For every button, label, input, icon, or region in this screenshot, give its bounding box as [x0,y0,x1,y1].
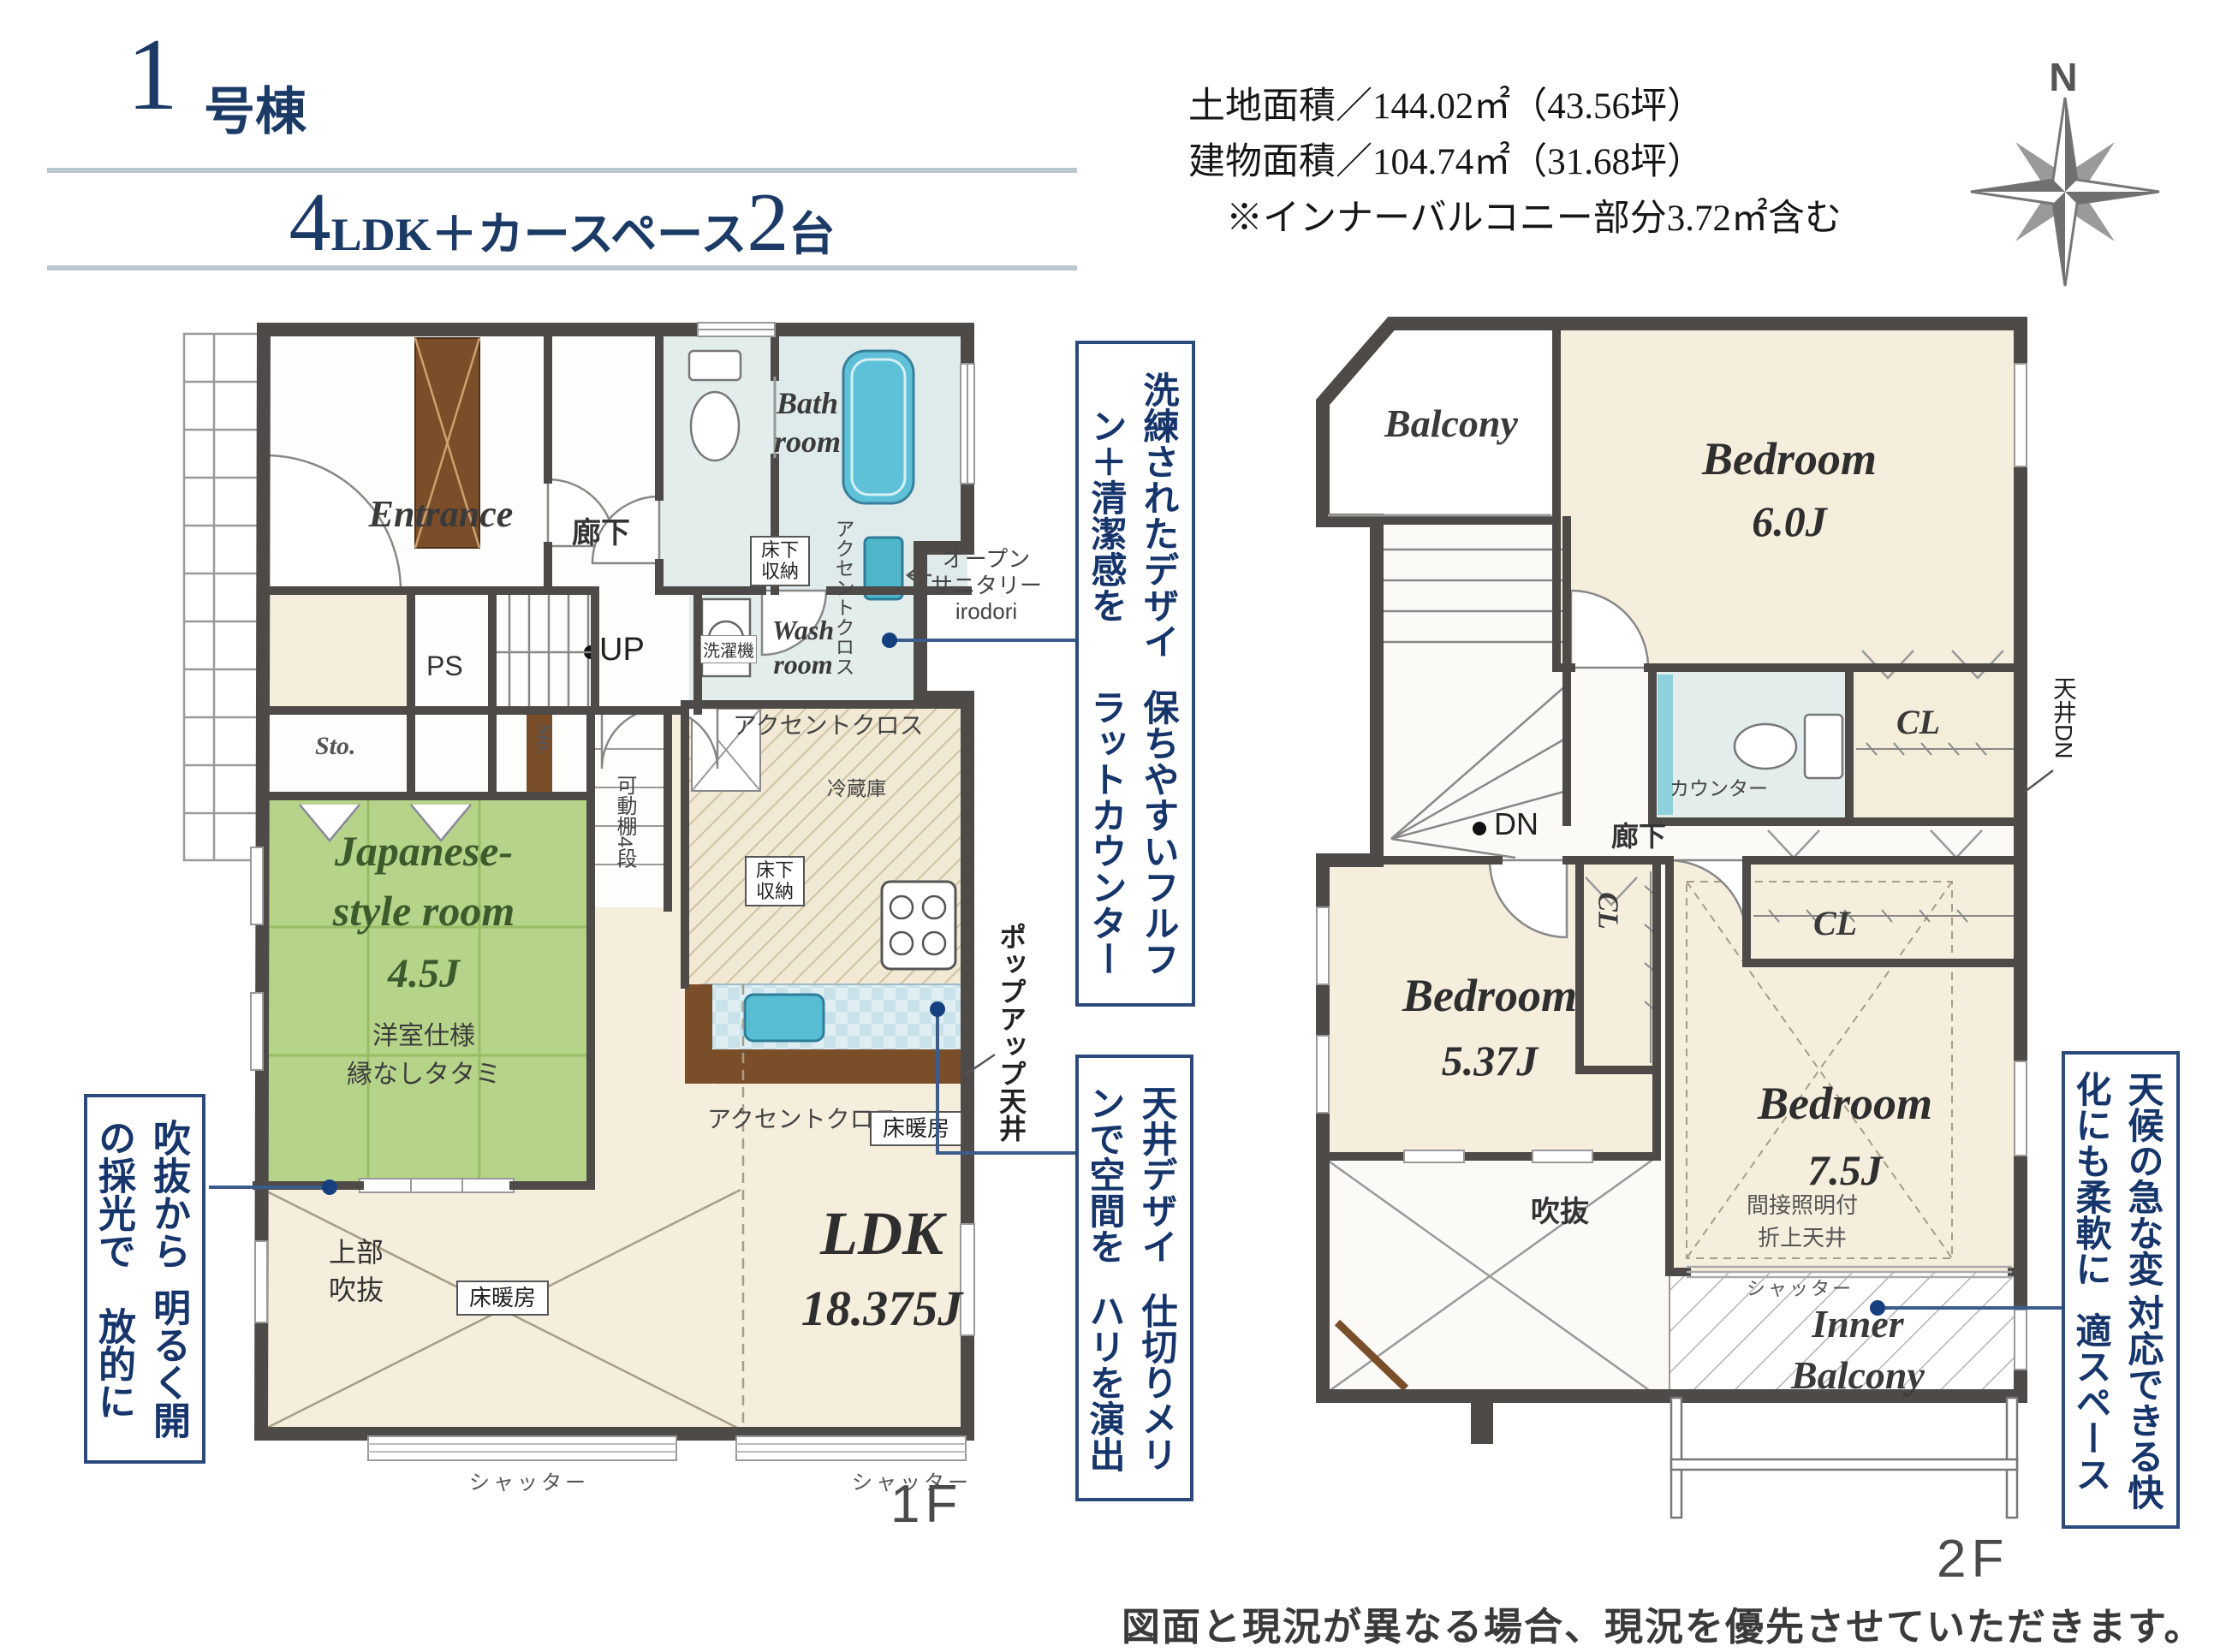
label-cl-1: CL [1896,702,1940,742]
annotation-ceiling-line2: 仕切りメリハリを演出 [1086,1278,1183,1486]
label-void-2f: 吹抜 [1531,1188,1589,1230]
underfloor-l1: 床下 [752,540,808,562]
connector-counter-dot [882,633,897,648]
annotation-void-line1: 吹抜からの採光で [94,1109,195,1279]
shutter-strips [368,1436,966,1460]
room-entrance: Entrance [334,492,548,536]
bed1-size: 6.0J [1674,496,1905,546]
label-up: UP [599,632,645,669]
annotation-ceiling: 天井デザインで空間を 仕切りメリハリを演出 [1075,1055,1193,1501]
label-washer: 洗濯機 [700,635,757,663]
annotation-inner-balcony: 天候の急な変化にも柔軟に 対応できる快適スペース [2062,1051,2180,1529]
layout-num2: 2 [747,176,789,269]
label-oriage-l2: 折上天井 [1734,1221,1871,1252]
floor-label-2f: 2F [1937,1529,2009,1590]
underfloor2-l1: 床下 [747,860,803,882]
label-fridge: 冷蔵庫 [827,772,886,801]
layout-num1: 4 [289,176,331,269]
unit-number: 1 [127,15,178,134]
connector-ceiling-hline [936,1151,1075,1155]
label-movable-shelf: 可動棚4段 [610,775,640,912]
connector-void-line [209,1186,334,1189]
area-info: 土地面積／144.02㎡（43.56坪） 建物面積／104.74㎡（31.68坪… [1188,79,1842,247]
label-oriage-l1: 間接照明付 [1734,1188,1871,1220]
room-corridor-2f: 廊下 [1611,815,1666,854]
label-accent-cloth-wash: アクセントクロス [829,519,858,698]
connector-inner-dot [1870,1300,1885,1316]
label-shutter-2f: シャッター [1747,1274,1854,1301]
label-open-sanitary: オープン サニタリー irodori [926,546,1046,625]
label-cl-3: CL [1592,892,1624,929]
label-underfloor-storage-kitchen: 床下 収納 [745,856,805,906]
label-sto-2: Sto. [532,723,555,756]
label-floor-heating-2: 床暖房 [456,1281,549,1316]
bed3-label: Bedroom [1712,1077,1978,1130]
header-rule-bottom [47,265,1077,270]
label-counter: カウンター [1669,772,1768,801]
label-popup-ceiling: ポップアップ天井 [991,923,1031,1214]
jp-room-line1: Japanese- [283,826,565,876]
label-ps: PS [426,651,463,682]
annotation-void-line2: 明るく開放的に [94,1279,195,1448]
room-ldk-size: 18.375J [771,1280,993,1337]
jp-room-line2: style room [283,886,565,936]
compass-rose [1971,98,2159,286]
layout-tail: 台 [789,209,835,260]
connector-inner-line [1884,1306,2062,1310]
annotation-counter-line2: 保ちやすいフルフラットカウンター [1086,674,1185,991]
label-void-upper-l1: 上部 [315,1231,397,1270]
annotation-void-light: 吹抜からの採光で 明るく開放的に [84,1094,205,1464]
jp-room-spec2: 縁なしタタミ [283,1053,565,1090]
entrance-porch [184,334,264,860]
annotation-ceiling-line1: 天井デザインで空間を [1086,1070,1183,1278]
jp-room-spec1: 洋室仕様 [283,1014,565,1052]
building-area: 建物面積／104.74㎡（31.68坪） [1188,134,1842,190]
jp-room-size: 4.5J [283,950,565,997]
unit-suffix: 号棟 [204,70,307,145]
label-tenjou-dn: 天井DN [2046,676,2080,856]
label-cl-2: CL [1813,903,1857,943]
room-bath-line1: Bath [760,385,854,421]
connector-counter-line [896,639,1075,642]
label-dn: DN [1494,806,1539,842]
flyer-page: 1 号棟 4LDK＋カースペース2台 土地面積／144.02㎡（43.56坪） … [0,0,2226,1652]
layout-subtitle: 4LDK＋カースペース2台 [47,175,1077,264]
bed2-label: Bedroom [1361,969,1618,1022]
header-rule-top [47,168,1077,173]
label-shutter-1: シャッター [469,1465,589,1495]
inner-balcony-l2: Balcony [1772,1352,1943,1398]
bed2-size: 5.37J [1361,1036,1618,1085]
label-sto-1: Sto. [315,732,356,761]
label-void-upper-l2: 吹抜 [315,1269,397,1308]
floor-label-1f: 1F [890,1474,962,1535]
open-sanitary-l3: irodori [926,598,1046,625]
connector-ceiling-vline [936,1014,939,1155]
annotation-inner-line1: 天候の急な変化にも柔軟に [2072,1067,2169,1290]
room-bath-line2: room [760,424,854,460]
underfloor-l2: 収納 [752,562,808,583]
label-accent-cloth-kitchen: アクセントクロス [733,707,924,741]
compass-n-label: N [2049,55,2077,99]
open-sanitary-l2: サニタリー [926,573,1046,599]
connector-ceiling-dot [930,1001,945,1017]
annotation-inner-line2: 対応できる快適スペース [2072,1290,2169,1513]
balcony-note: ※インナーバルコニー部分3.72㎡含む [1188,191,1842,247]
room-corridor-1f: 廊下 [572,509,630,551]
label-underfloor-storage-wash: 床下 収納 [750,536,810,586]
underfloor2-l2: 収納 [747,882,803,903]
label-floor-heating-1: 床暖房 [870,1111,962,1146]
connector-void-dot [322,1180,337,1195]
room-ldk: LDK [796,1198,967,1269]
annotation-counter: 洗練されたデザイン＋清潔感を 保ちやすいフルフラットカウンター [1075,341,1195,1007]
layout-mid: LDK＋カースペース [331,209,747,260]
annotation-counter-line1: 洗練されたデザイン＋清潔感を [1086,356,1185,674]
footer-disclaimer: 図面と現況が異なる場合、現況を優先させていただきます。 [1122,1596,2200,1651]
open-sanitary-l1: オープン [926,546,1046,573]
room-balcony: Balcony [1353,401,1550,446]
land-area: 土地面積／144.02㎡（43.56坪） [1188,79,1842,134]
bed1-label: Bedroom [1674,432,1905,485]
compass: N [1962,38,2168,294]
